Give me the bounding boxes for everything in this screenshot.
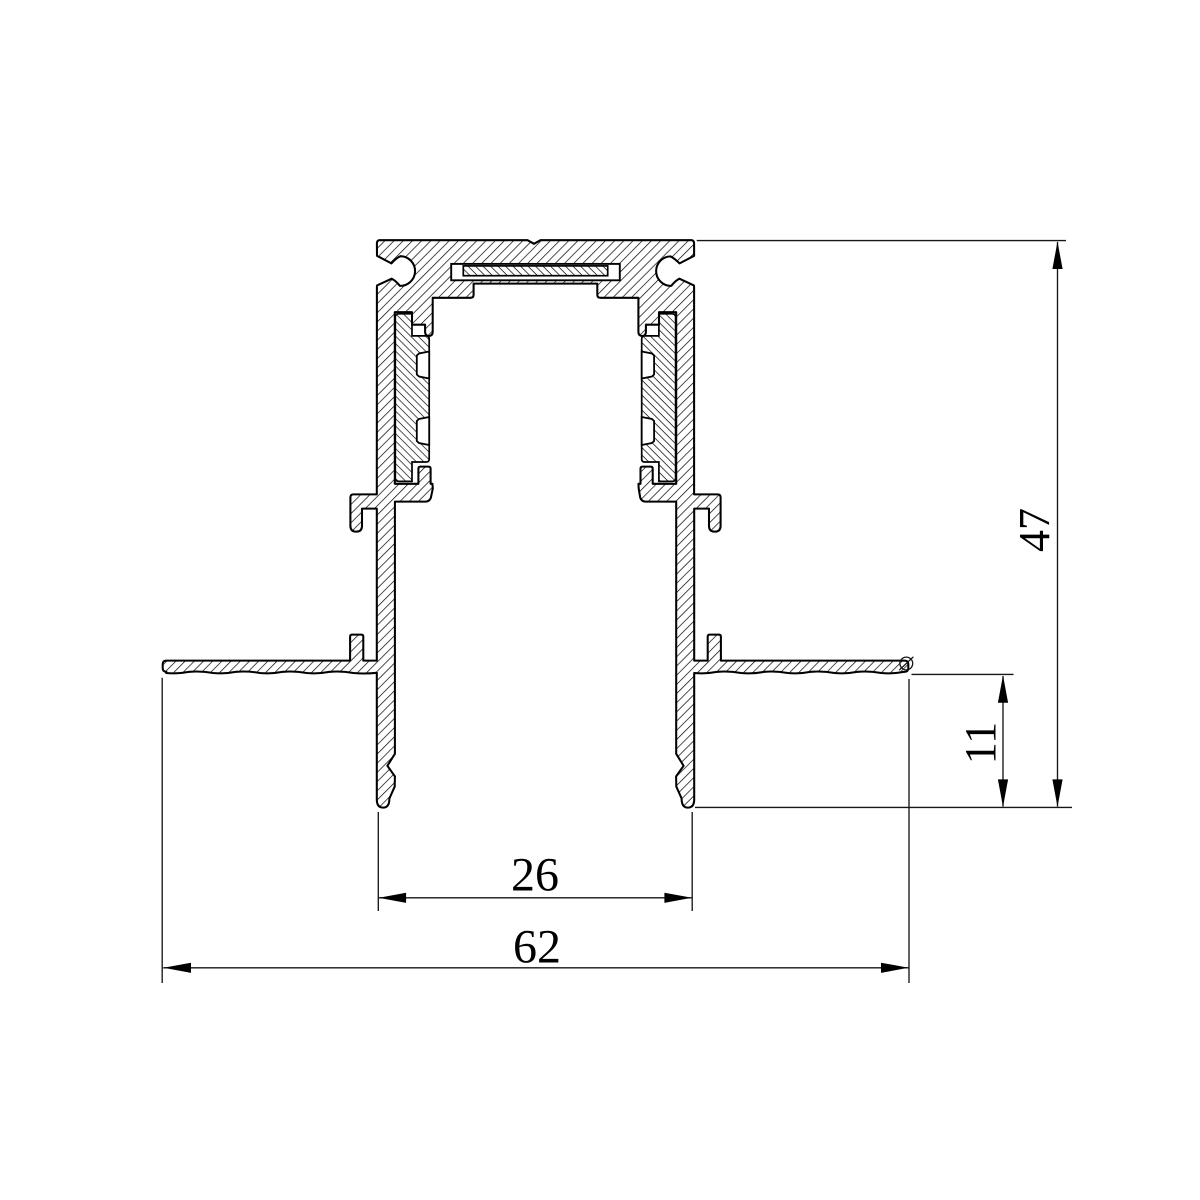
svg-text:26: 26 [511,848,559,901]
svg-text:62: 62 [513,921,561,974]
svg-text:47: 47 [1010,508,1059,552]
svg-text:11: 11 [956,722,1005,764]
